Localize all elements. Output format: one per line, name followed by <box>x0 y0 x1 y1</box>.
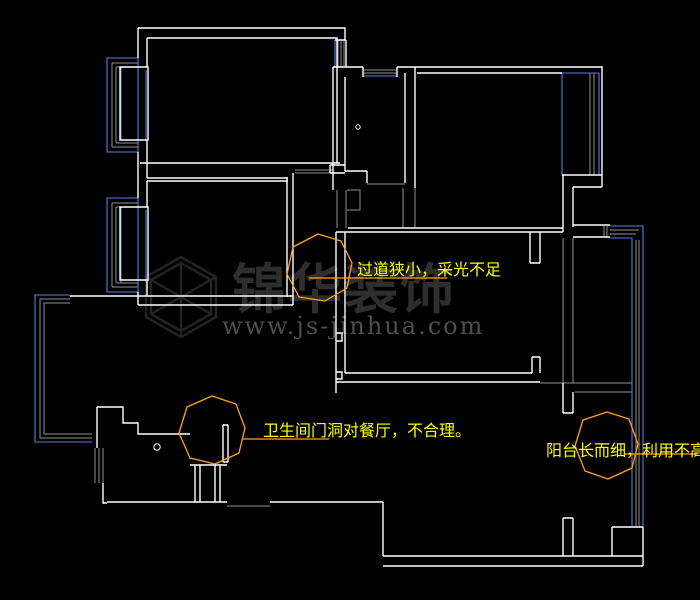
annotation-balcony-text: 阳台长而细，利用不高 <box>546 441 700 460</box>
revision-cloud-bathroom-door <box>179 396 245 464</box>
door-knob-dot-toilet <box>154 444 160 450</box>
annotation-bathroom-door-text: 卫生间门洞对餐厅，不合理。 <box>263 421 471 440</box>
annotation-corridor-text: 过道狭小，采光不足 <box>357 260 501 279</box>
cad-canvas: 锦华装饰 www.js-jinhua.com 过道狭小，采光不足 卫生间门洞对 <box>0 0 700 600</box>
floor-plan-drawing: 锦华装饰 www.js-jinhua.com 过道狭小，采光不足 卫生间门洞对 <box>0 0 700 600</box>
watermark-logo-icon <box>146 257 216 337</box>
watermark-url-text: www.js-jinhua.com <box>222 312 484 340</box>
door-knob-dot-bathroom <box>356 125 360 129</box>
